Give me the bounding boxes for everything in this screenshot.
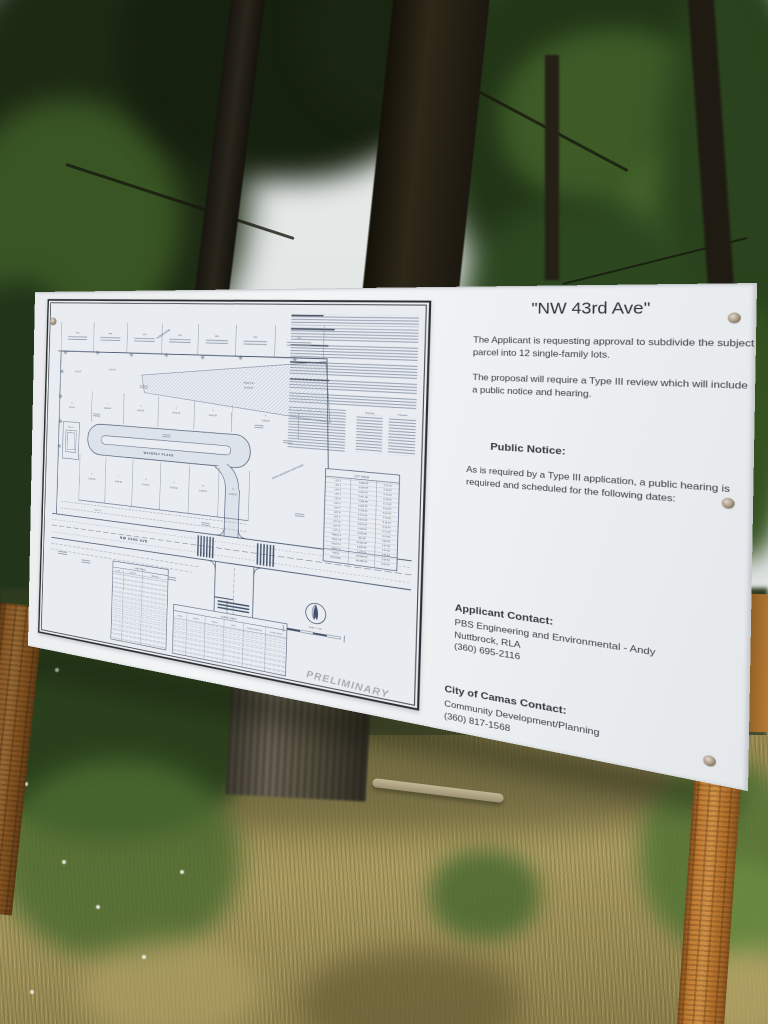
site-plan-drawing: Required Proposed APN APN APN APN APN [43,305,423,702]
svg-text:7: 7 [118,476,119,478]
svg-text:4: 4 [212,410,213,412]
svg-text:8: 8 [145,479,146,481]
applicant-contact-lines: PBS Engineering and Environmental - Andy… [454,617,655,686]
svg-text:5,714 SF: 5,714 SF [142,484,151,487]
svg-text:6: 6 [92,473,93,475]
wildflower [96,905,100,909]
tract-b: TRACT 'B' 16,326 SF [141,355,332,422]
standards-col-proposed: Proposed [398,414,408,417]
north-arrow: Scale 1" = 30' [283,598,345,642]
public-notice-heading: Public Notice: [490,441,566,458]
svg-text:5,003 SF: 5,003 SF [199,490,208,493]
crosswalk-ticks [196,535,273,616]
lower-lot-labels: 65,299 SF 75,708 SF 85,714 SF 95,873 SF … [88,473,238,497]
svg-text:5: 5 [265,415,266,418]
wildflower [62,860,66,864]
standards-col-required: Required [365,412,374,415]
svg-text:APN: APN [178,334,183,338]
wildflower [180,870,184,874]
svg-text:9: 9 [174,482,175,484]
svg-text:TRACT 'A': TRACT 'A' [94,508,102,512]
board-title: "NW 43rd Ave" [446,300,754,319]
svg-text:5,003 SF: 5,003 SF [69,406,75,409]
svg-text:10: 10 [202,485,204,488]
line-table: LINE TABLE LINE LENGTH BEARING [111,561,168,650]
svg-text:3: 3 [176,407,177,409]
svg-text:12: 12 [71,402,73,404]
weed-patch [430,850,540,940]
lot-table: LOT TABLE LOT 15,008 SF0.11 ACLOT 25,292… [323,468,400,570]
svg-text:2: 2 [140,405,141,407]
svg-text:1: 1 [107,403,108,405]
west-lot-labels: 12 5,003 SF 5,003 SF 5,008 SF [69,367,116,412]
curve-table: CURVE TABLE CURVE LENGTH RADIUS DELTA CH… [172,604,287,676]
street-label-avenue: NW 43RD AVE [120,535,148,544]
tree-trunk [545,55,559,280]
svg-text:APN: APN [109,332,113,335]
svg-text:7,328 SF: 7,328 SF [261,420,271,423]
svg-text:APN: APN [76,331,80,334]
svg-text:5,447 SF: 5,447 SF [209,415,218,418]
screw [703,754,716,767]
wildflower [30,990,34,994]
svg-text:5,708 SF: 5,708 SF [115,481,123,484]
svg-text:APN: APN [215,334,220,338]
neighbor-parcels [58,321,328,360]
photo-scene: Required Proposed APN APN APN APN APN [0,0,768,1024]
intro-paragraph-2: The proposal will require a Type III rev… [472,372,754,408]
sierra-meadows-label: SIERRA MEADOWS SUBDIVISION [271,463,305,481]
wildflower [142,955,146,959]
svg-text:5,008 SF: 5,008 SF [109,369,116,372]
svg-text:TRACT 'C': TRACT 'C' [68,425,76,429]
svg-text:11: 11 [232,488,234,491]
preliminary-watermark: PRELIMINARY [306,668,390,700]
svg-text:5,873 SF: 5,873 SF [170,487,179,490]
svg-text:5,008 SF: 5,008 SF [104,408,112,411]
tract-c: TRACT 'C' [62,421,79,459]
scale-label: Scale 1" = 30' [309,626,323,631]
svg-text:5,292 SF: 5,292 SF [137,410,146,413]
plan-sheet: Required Proposed APN APN APN APN APN [38,299,431,711]
svg-text:APN: APN [253,335,258,339]
screw [722,497,735,509]
subdivision-diagonal-label: SUBDIVISION [157,329,172,340]
screw [728,312,741,323]
dry-grass-patch [80,940,260,1024]
svg-text:5,003 SF: 5,003 SF [75,371,82,374]
intro-paragraph-1: The Applicant is requesting approval to … [473,334,755,365]
svg-text:APN: APN [143,333,147,337]
public-notice-body: As is required by a Type III application… [466,464,746,512]
svg-text:5,003 SF: 5,003 SF [172,412,181,415]
svg-text:5,299 SF: 5,299 SF [88,478,96,481]
weed-patch [0,760,240,960]
